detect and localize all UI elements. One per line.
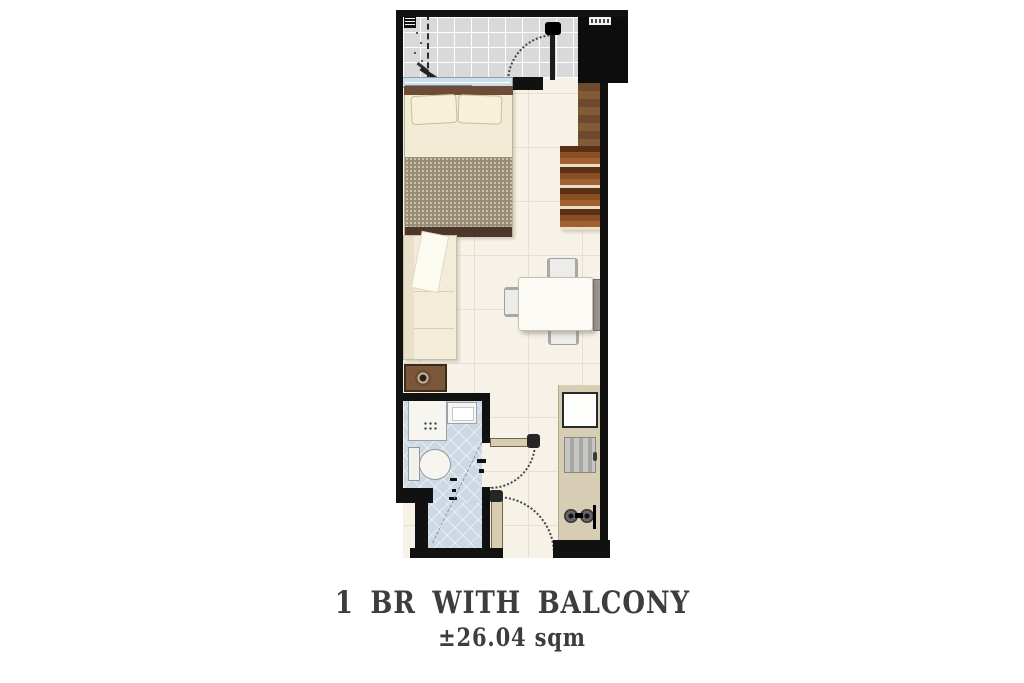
toilet <box>408 447 452 481</box>
entrance-door-leaf <box>491 496 503 552</box>
shower-controls <box>423 421 437 430</box>
wall-bathroom-top <box>396 393 490 401</box>
unit-area: ±26.04 sqm <box>438 623 586 652</box>
side-table <box>404 364 447 392</box>
drain-dot <box>416 32 418 34</box>
bed-pillow <box>410 94 457 125</box>
floorplan-page: 1 BR WITH BALCONY ±26.04 sqm <box>0 0 1024 683</box>
stove <box>562 503 596 530</box>
bathroom-floor <box>428 503 482 548</box>
wall-step <box>396 488 433 503</box>
entrance-door-handle <box>489 490 503 502</box>
lavatory-sink <box>447 402 477 424</box>
faucet-icon <box>593 452 597 461</box>
sofa <box>403 235 457 360</box>
bed <box>404 86 513 237</box>
wall-bathroom-right-lower <box>482 487 490 548</box>
sofa-backrest <box>404 236 414 359</box>
corridor-label-chip <box>589 16 611 25</box>
dining-table <box>518 277 593 331</box>
shower-area <box>408 400 447 441</box>
corridor-block <box>578 10 628 83</box>
balcony-door-leaf <box>550 30 555 80</box>
floorplan <box>396 10 628 560</box>
wall-top <box>396 10 628 17</box>
sofa-throw-blanket <box>411 231 450 293</box>
wall-bottom-right <box>553 540 610 558</box>
toilet-bowl <box>419 449 451 480</box>
caption: 1 BR WITH BALCONY ±26.04 sqm <box>0 585 1024 652</box>
drain-dot <box>420 42 422 44</box>
floor-drain-mark <box>452 489 456 492</box>
bed-pillow <box>458 94 503 125</box>
wardrobe-drawers <box>560 146 600 230</box>
refrigerator <box>562 392 598 428</box>
floor-drain-mark <box>450 478 457 481</box>
unit-type-title: 1 BR WITH BALCONY <box>334 585 689 621</box>
wall-bathroom-right-upper <box>482 401 490 443</box>
wall-balcony-stub <box>513 77 543 90</box>
wall-bottom-left <box>410 548 503 558</box>
drain-dot <box>414 52 416 54</box>
wardrobe-upper <box>578 83 600 148</box>
wall-left <box>396 10 403 503</box>
bed-headboard <box>404 86 513 95</box>
decor-bowl <box>415 370 431 386</box>
door-stop-mark <box>477 459 486 463</box>
balcony-door-handle <box>545 22 561 35</box>
door-stop-mark <box>479 469 484 473</box>
bed-blanket <box>405 157 512 227</box>
bathroom-door-handle <box>527 434 540 448</box>
wall-lower-left <box>415 503 428 548</box>
kitchen-sink <box>564 437 596 473</box>
wall-right <box>600 83 608 558</box>
drain-dot <box>421 60 423 62</box>
